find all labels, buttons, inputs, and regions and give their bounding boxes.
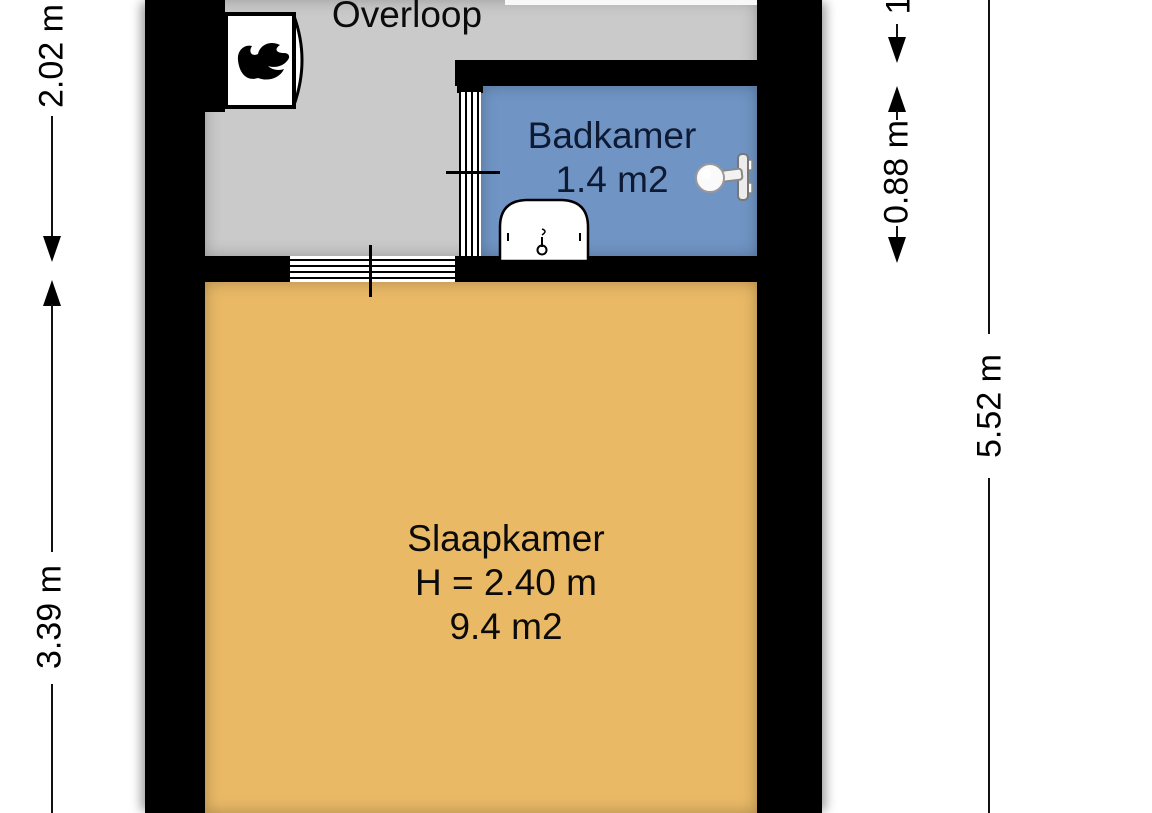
dim-right-badkamer-label: 0.88 m	[878, 120, 917, 224]
room-slaapkamer-label-block: Slaapkamer H = 2.40 m 9.4 m2	[230, 517, 782, 649]
wall-badkamer-top	[455, 60, 757, 86]
room-slaapkamer-area: 9.4 m2	[230, 605, 782, 649]
floorplan-canvas: Overloop Badkamer 1.4 m2 Slaapkamer H = …	[0, 0, 1152, 813]
arrow-up-icon	[43, 280, 61, 306]
dim-right-total-line-upper	[988, 0, 990, 334]
arrow-down-icon	[43, 236, 61, 262]
dim-right-total-label: 5.52 m	[971, 354, 1010, 458]
sink-icon	[496, 197, 592, 263]
room-badkamer-label-block: Badkamer 1.4 m2	[481, 114, 743, 202]
arrow-down-icon	[888, 37, 906, 63]
dim-left-bottom-line-upper	[51, 304, 53, 552]
wall-exterior-right	[757, 0, 822, 813]
room-slaapkamer-ceiling-height: H = 2.40 m	[230, 561, 782, 605]
dim-right-total-line-lower	[988, 478, 990, 813]
room-badkamer-area: 1.4 m2	[481, 158, 743, 202]
dim-right-badkamer-line-upper	[896, 110, 898, 120]
passage-tick	[369, 245, 372, 297]
arrow-up-icon	[888, 86, 906, 112]
wall-exterior-left	[145, 0, 205, 813]
dim-left-top-line	[51, 116, 53, 238]
door-badkamer	[459, 92, 481, 256]
dim-left-top-label: 2.02 m	[33, 4, 72, 108]
arrow-down-icon	[888, 237, 906, 263]
room-badkamer-label: Badkamer	[481, 114, 743, 158]
dim-left-bottom-line-lower	[51, 684, 53, 813]
room-overloop-label: Overloop	[205, 0, 609, 37]
wall-badkamer-door-stub	[457, 60, 483, 93]
passage-overloop-slaapkamer	[290, 259, 455, 279]
dim-right-partial-line	[896, 24, 898, 38]
dim-right-partial-label: 1	[880, 0, 919, 14]
room-slaapkamer-label: Slaapkamer	[230, 517, 782, 561]
wall-overloop-slaapkamer	[205, 256, 290, 282]
dim-left-bottom-label: 3.39 m	[31, 565, 70, 669]
